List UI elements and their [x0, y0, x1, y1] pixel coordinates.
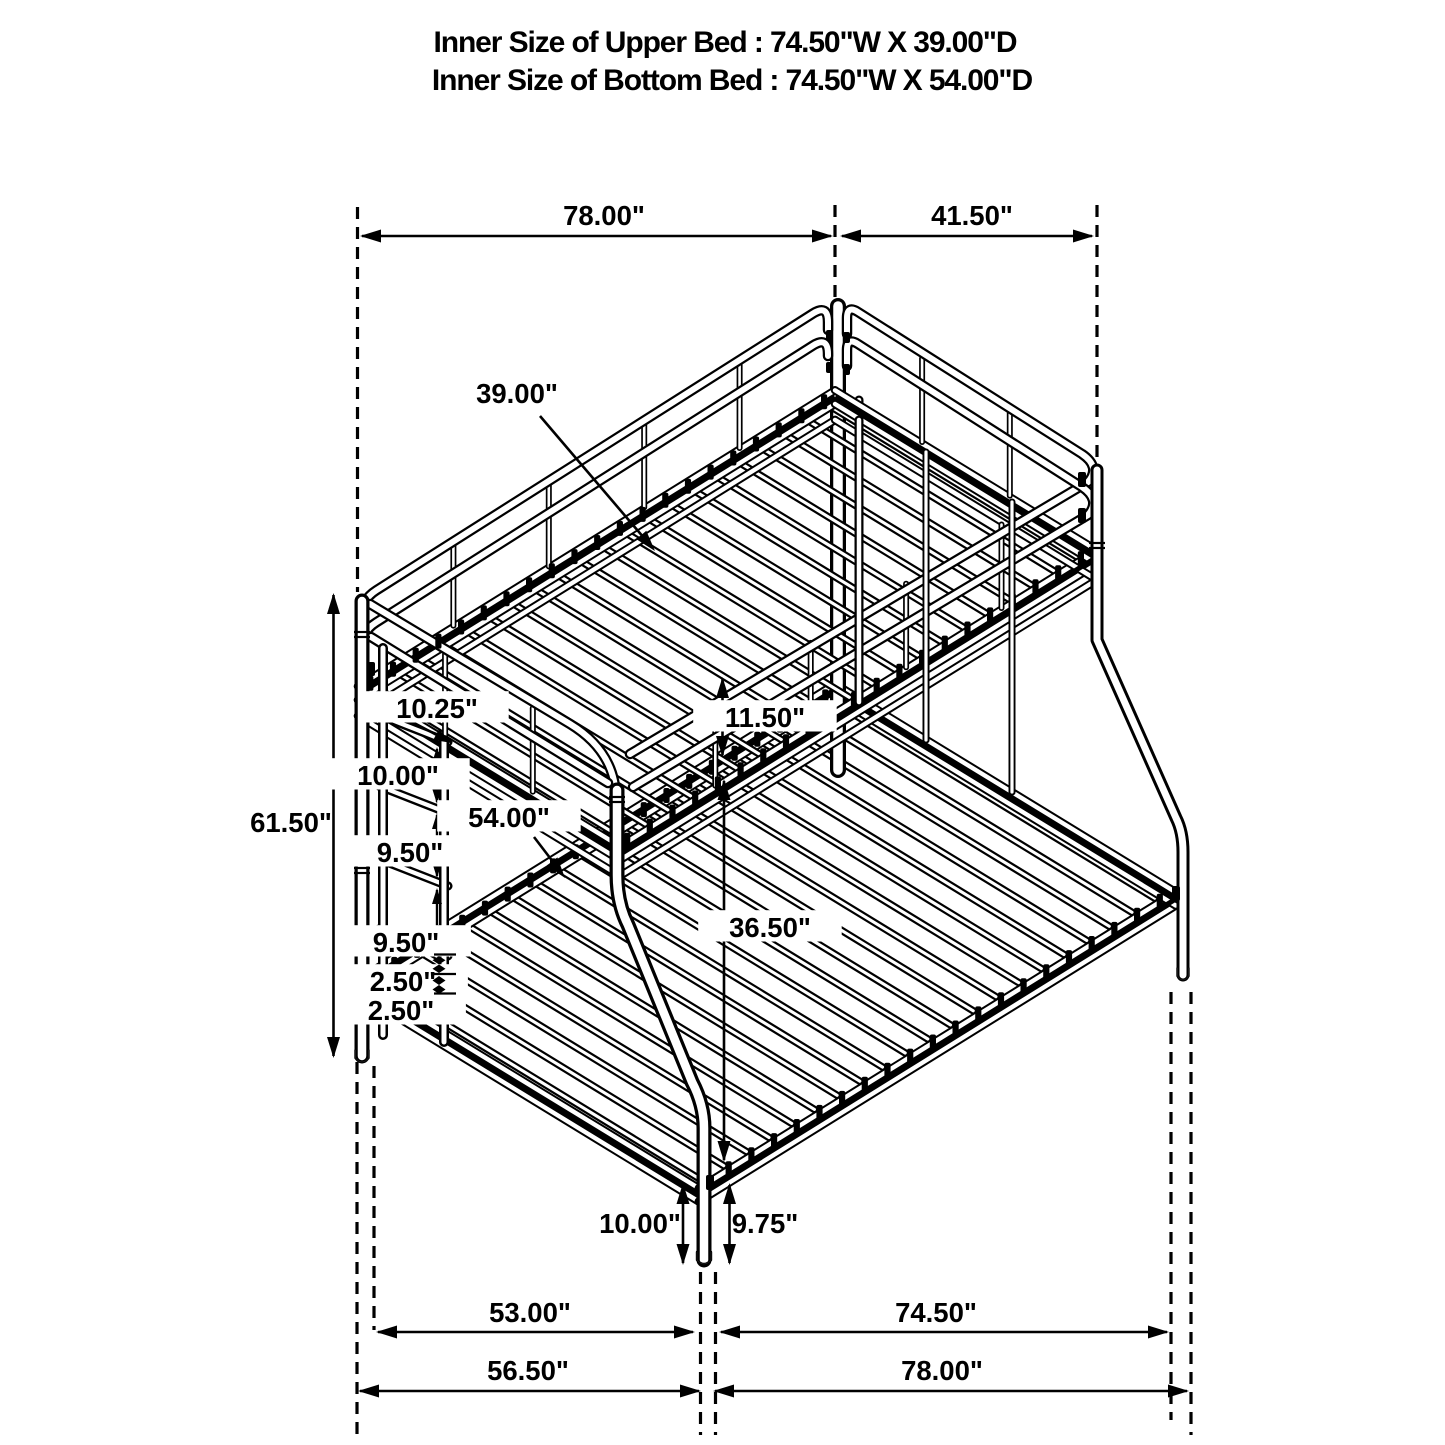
svg-text:56.50": 56.50"	[487, 1355, 569, 1386]
svg-text:36.50": 36.50"	[729, 912, 811, 943]
svg-text:39.00": 39.00"	[476, 378, 558, 409]
svg-text:Inner Size of Upper Bed : 74.5: Inner Size of Upper Bed : 74.50"W X 39.0…	[434, 26, 1017, 59]
svg-text:53.00": 53.00"	[489, 1297, 571, 1328]
svg-text:61.50": 61.50"	[250, 807, 332, 838]
svg-text:2.50": 2.50"	[368, 995, 435, 1026]
svg-text:78.00": 78.00"	[901, 1355, 983, 1386]
svg-text:41.50": 41.50"	[931, 200, 1013, 231]
svg-text:10.00": 10.00"	[357, 760, 439, 791]
svg-text:9.50": 9.50"	[377, 837, 444, 868]
svg-text:Inner Size of Bottom Bed : 74.: Inner Size of Bottom Bed : 74.50"W X 54.…	[432, 64, 1033, 97]
svg-text:74.50": 74.50"	[895, 1297, 977, 1328]
svg-text:11.50": 11.50"	[725, 702, 805, 733]
svg-text:54.00": 54.00"	[468, 802, 550, 833]
svg-text:10.00": 10.00"	[599, 1208, 681, 1239]
svg-text:9.75": 9.75"	[732, 1208, 799, 1239]
svg-text:10.25": 10.25"	[396, 693, 478, 724]
svg-text:9.50": 9.50"	[373, 927, 440, 958]
svg-text:2.50": 2.50"	[370, 966, 437, 997]
svg-text:78.00": 78.00"	[563, 200, 645, 231]
